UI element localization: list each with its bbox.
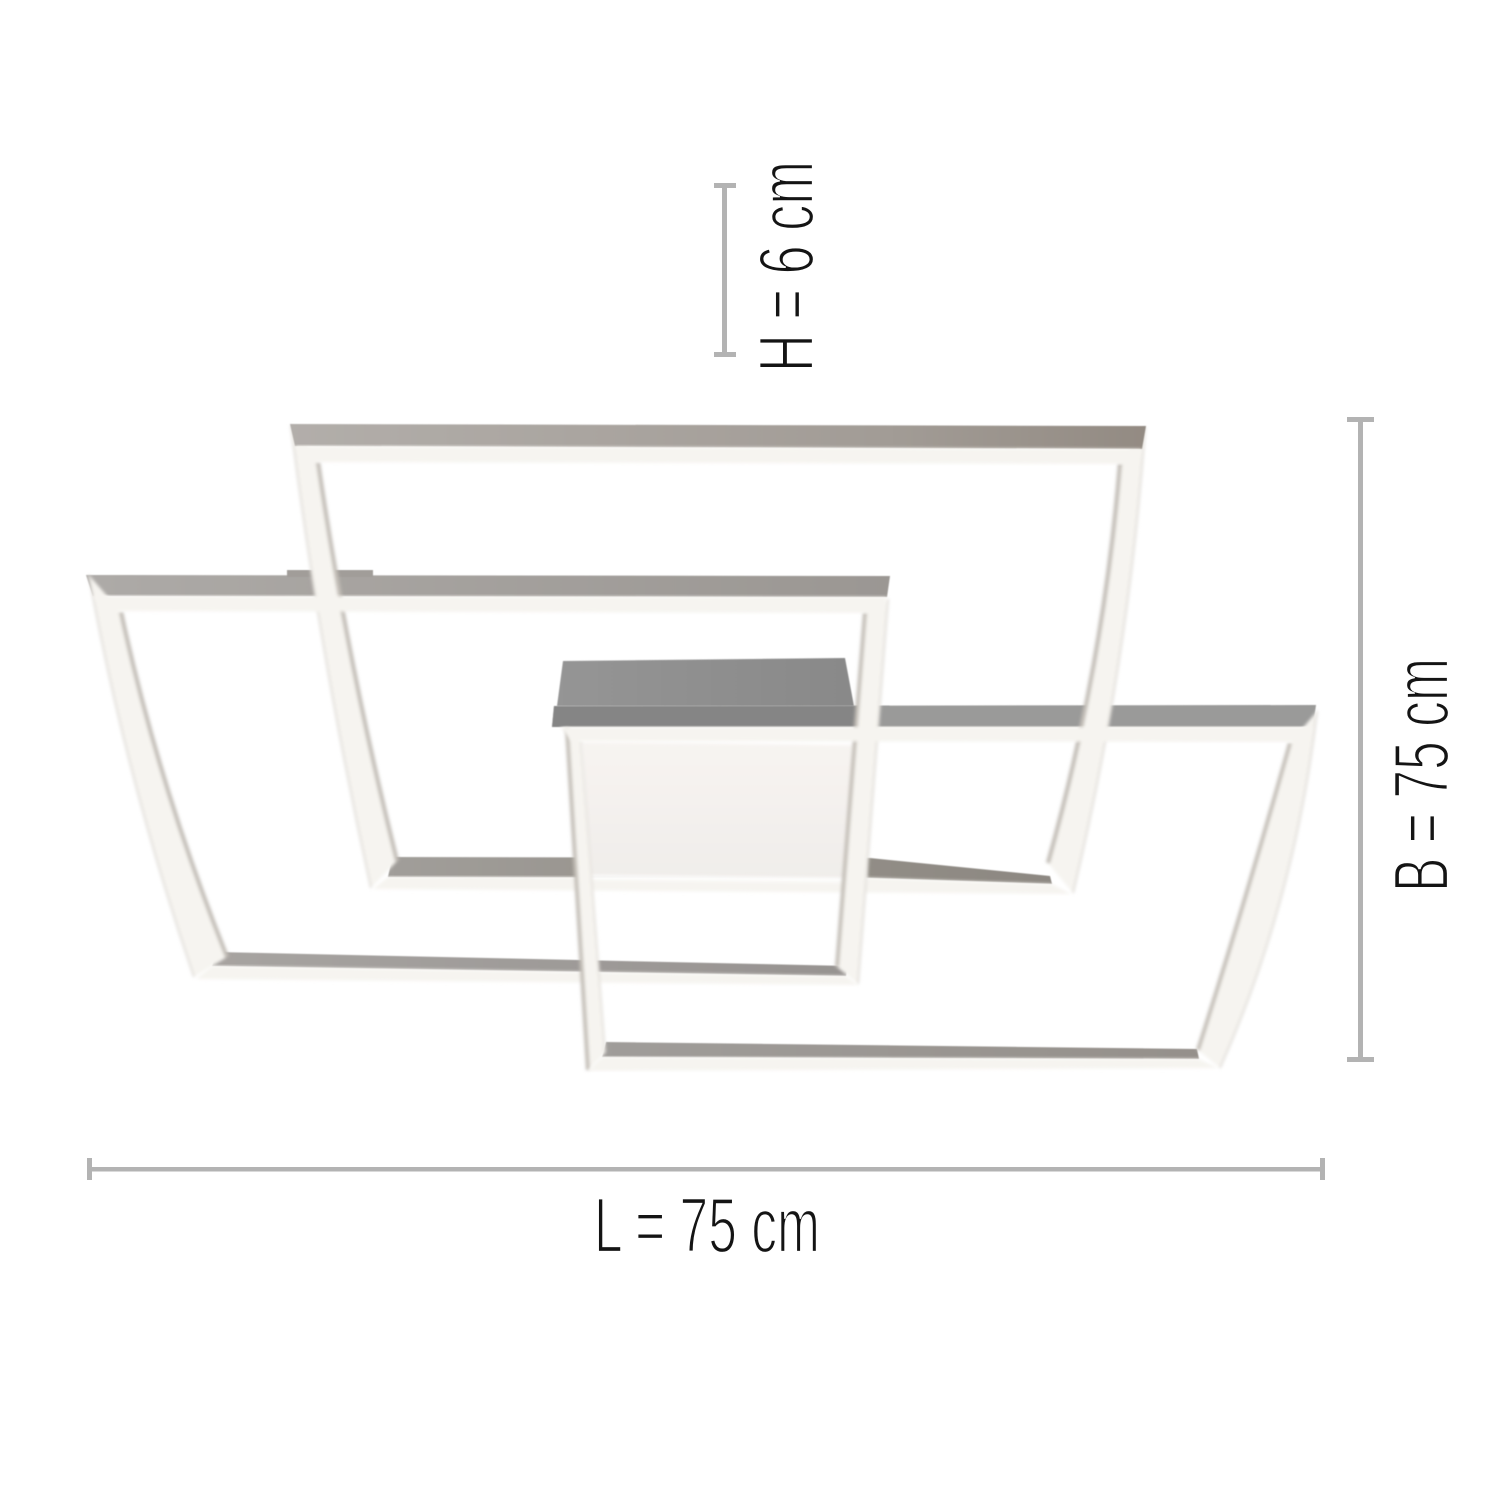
svg-text:H = 6 cm: H = 6 cm	[742, 161, 830, 372]
svg-text:B = 75 cm: B = 75 cm	[1377, 658, 1465, 892]
svg-text:L = 75 cm: L = 75 cm	[594, 1181, 820, 1269]
